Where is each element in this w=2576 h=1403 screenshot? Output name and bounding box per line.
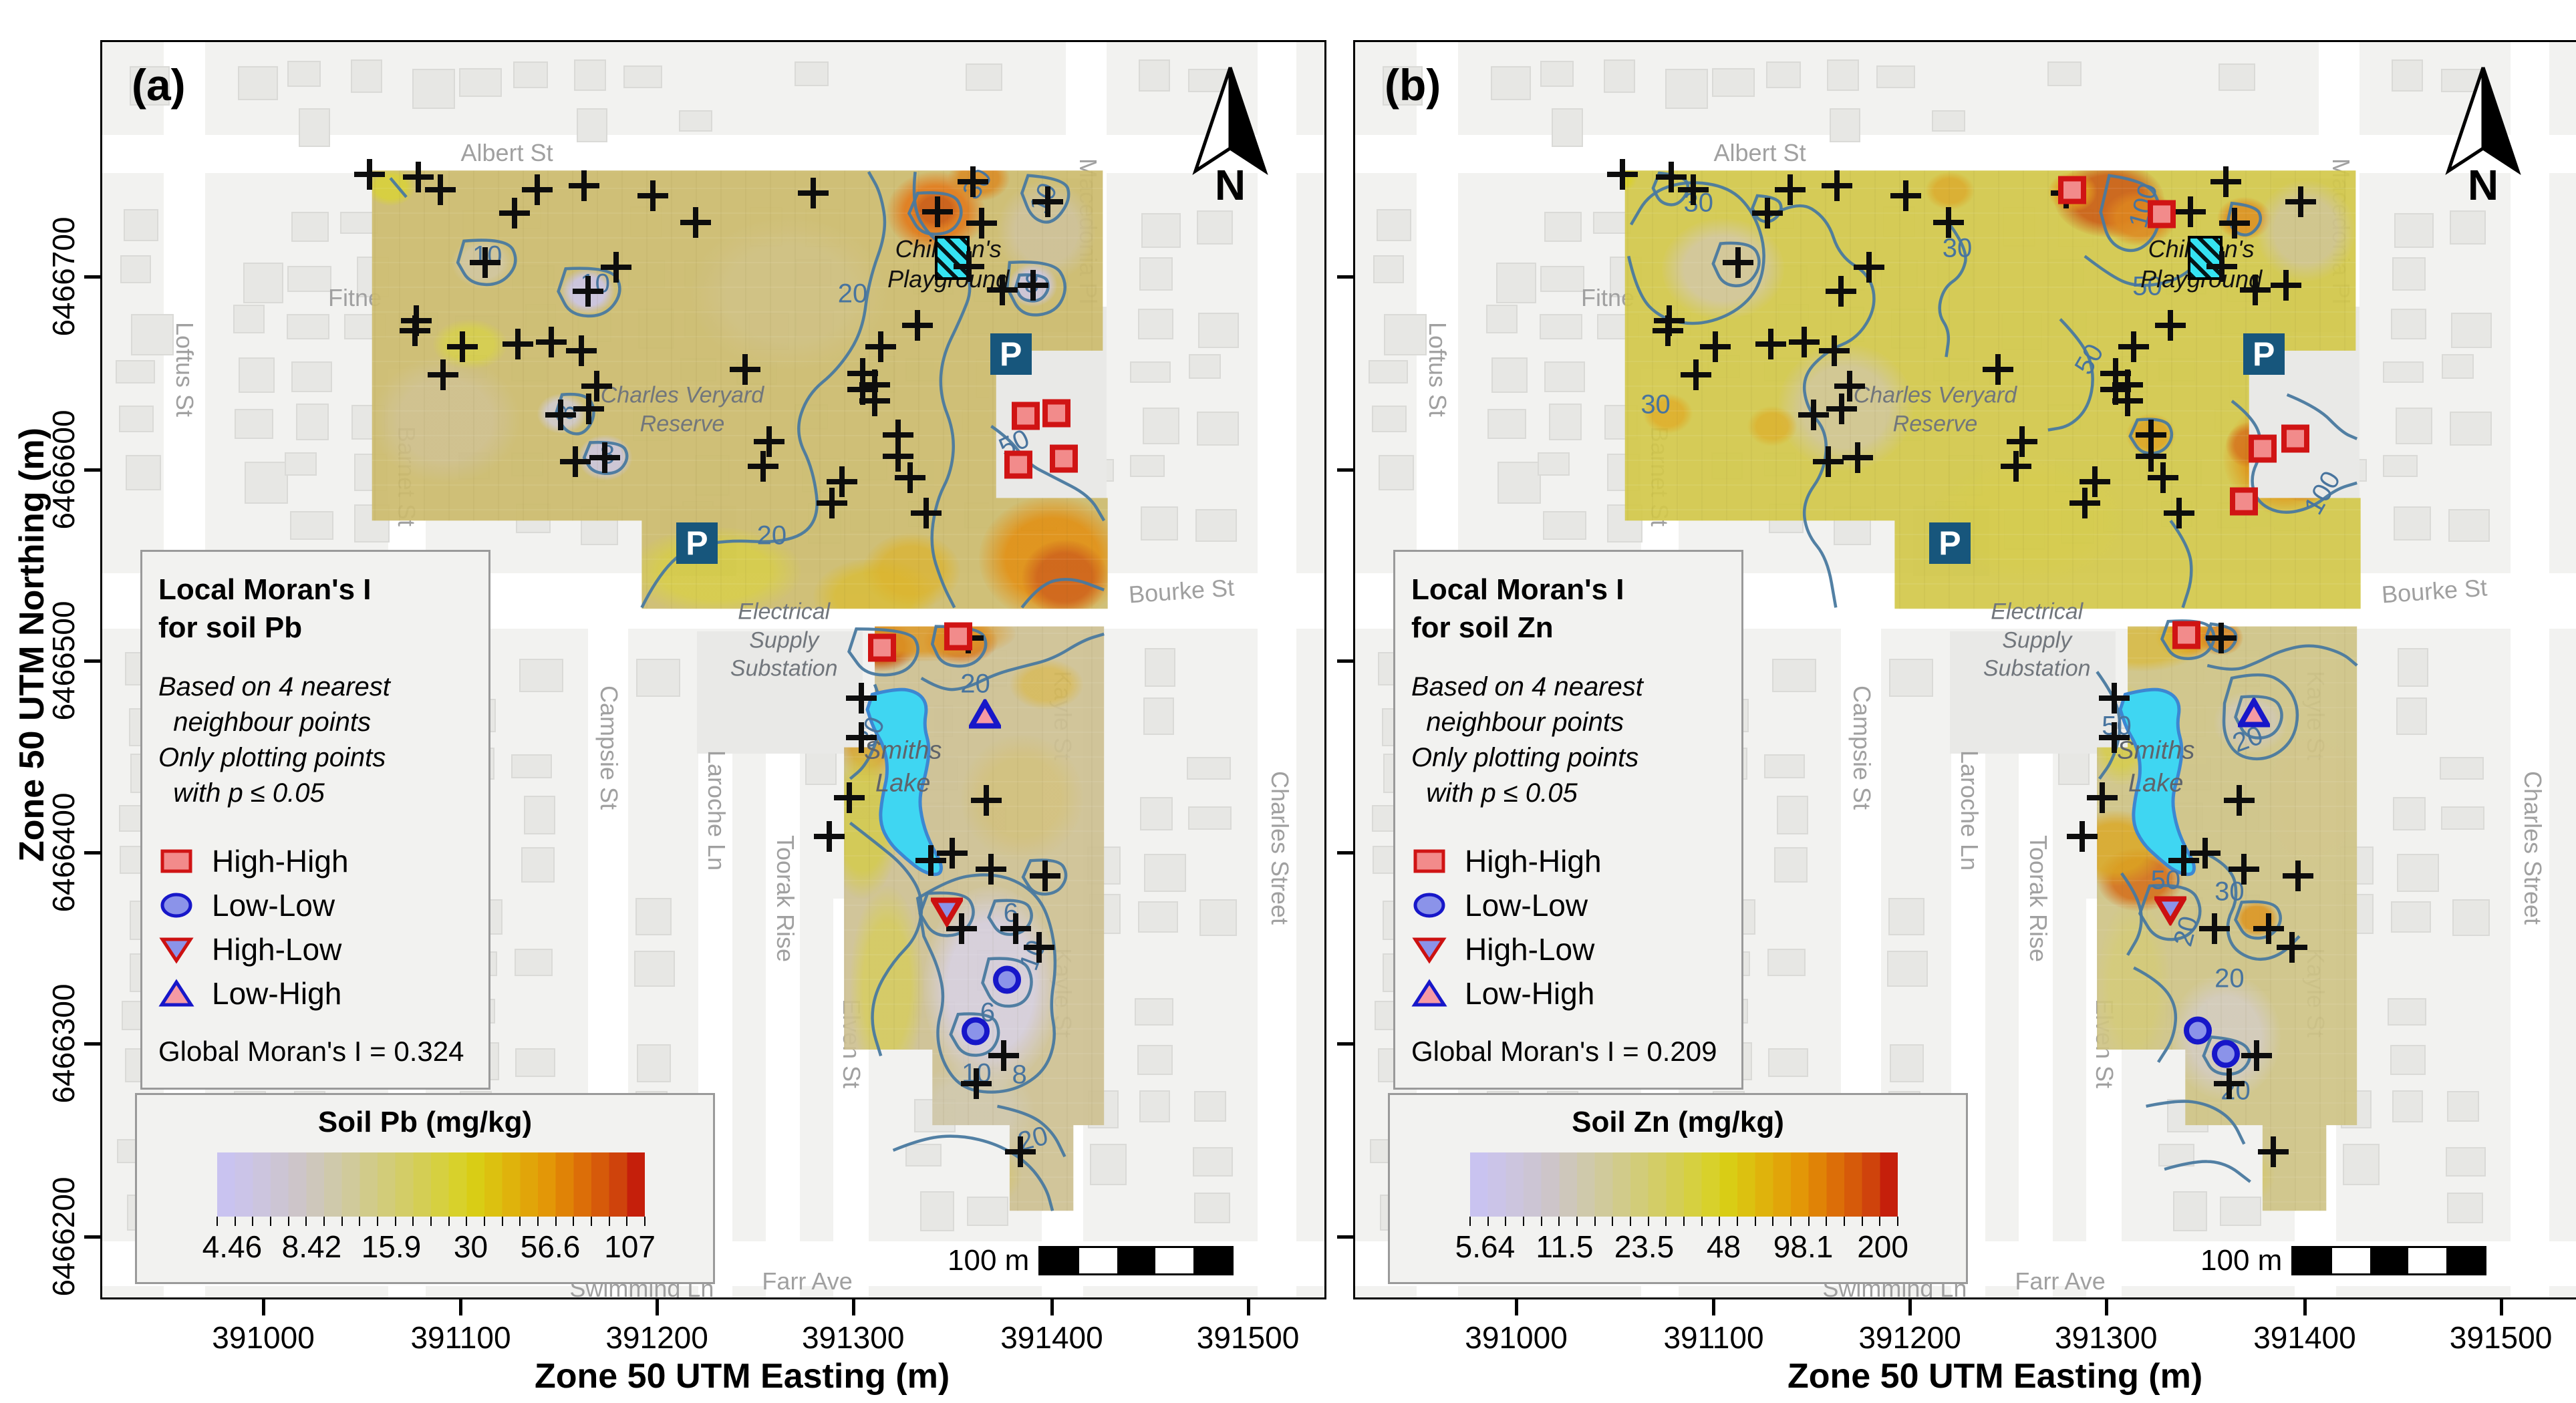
x-axis-tick (1712, 1299, 1715, 1315)
colorbar-tick (359, 1217, 360, 1226)
colorbar-tick (519, 1217, 521, 1226)
building (291, 361, 332, 392)
colorbar-tick (555, 1217, 557, 1226)
building (1139, 59, 1170, 92)
x-axis-title-b: Zone 50 UTM Easting (m) (1787, 1356, 2202, 1396)
building (2451, 313, 2492, 348)
sample-cross (798, 178, 829, 208)
building (519, 659, 563, 692)
building (2447, 1193, 2483, 1224)
y-axis-tick (84, 851, 100, 854)
sample-cross (966, 208, 997, 239)
legend-item: Low-Low (158, 887, 472, 923)
building (2392, 257, 2426, 290)
colorbar-tick (1897, 1217, 1898, 1226)
building (515, 1048, 555, 1076)
sample-cross (680, 207, 711, 238)
colorbar-tick (591, 1217, 592, 1226)
sample-cross (730, 354, 760, 385)
colorbar-tick (644, 1217, 646, 1226)
y-axis-tick-label: 6466400 (45, 792, 82, 912)
legend-item-label: Low-Low (212, 887, 335, 923)
sample-cross (470, 247, 500, 278)
sample-cross (1755, 329, 1786, 359)
building (1552, 108, 1583, 147)
colorbar-tick (305, 1217, 307, 1226)
building (243, 263, 283, 303)
building (1384, 314, 1427, 355)
colorbar-tick (1755, 1217, 1756, 1226)
sample-cross (1933, 207, 1964, 238)
building (291, 212, 329, 242)
legend-item: Low-High (158, 975, 472, 1011)
marker-high-low (931, 895, 963, 930)
building (513, 61, 548, 88)
street-label: Campsie St (595, 685, 623, 810)
sample-cross (1005, 1136, 1036, 1167)
building (2173, 1191, 2208, 1231)
colorbar-tick (1701, 1217, 1703, 1226)
building (795, 61, 829, 86)
building (2383, 455, 2418, 477)
building (635, 898, 672, 935)
x-axis-tick-label: 391400 (2253, 1319, 2356, 1356)
colorbar-tick (341, 1217, 343, 1226)
sample-cross (1607, 159, 1638, 190)
sample-cross (2190, 838, 2221, 869)
building (966, 63, 1002, 91)
colorbar-tick (1737, 1217, 1738, 1226)
legend-note: Based on 4 nearest neighbour pointsOnly … (158, 669, 472, 810)
sample-cross (2069, 488, 2100, 518)
colorbar-tick-label: 98.1 (1773, 1229, 1834, 1265)
legend-low-low-icon (1411, 890, 1447, 921)
colorbar-tick (1862, 1217, 1863, 1226)
x-axis-tick-label: 391500 (2450, 1319, 2553, 1356)
building (577, 108, 608, 142)
building (1130, 361, 1171, 383)
sample-cross (2271, 270, 2301, 301)
sample-cross (428, 359, 458, 390)
street-label: Charles Street (1266, 771, 1294, 925)
contour-label: 20 (2214, 964, 2245, 994)
contour-label: 20 (757, 520, 787, 551)
sample-cross (2067, 821, 2098, 852)
x-axis-title-a: Zone 50 UTM Easting (m) (535, 1356, 950, 1396)
scale-bar-segment (2293, 1248, 2331, 1273)
building (2442, 354, 2474, 379)
y-axis-tick (1337, 1235, 1353, 1239)
building (574, 59, 606, 91)
building (2383, 361, 2424, 383)
building (1141, 213, 1181, 248)
building (459, 68, 502, 97)
legend-item: High-High (1411, 843, 1725, 879)
y-axis-tick (84, 275, 100, 279)
legend-global-moran: Global Moran's I = 0.209 (1411, 1036, 1725, 1068)
street (2511, 42, 2550, 1299)
building (287, 61, 321, 87)
x-axis-tick (1247, 1299, 1250, 1315)
building (2388, 998, 2426, 1026)
sample-cross (976, 854, 1006, 885)
building (1491, 66, 1531, 100)
sample-cross (2229, 854, 2259, 885)
legend-low-low-icon (158, 890, 194, 921)
building (119, 406, 153, 433)
building (1139, 1090, 1170, 1123)
y-axis-tick (84, 468, 100, 472)
sample-cross (895, 462, 925, 493)
sample-cross (971, 785, 1002, 816)
legend-global-moran: Global Moran's I = 0.324 (158, 1036, 472, 1068)
sample-cross (883, 420, 913, 450)
scale-bar: 100 m (948, 1244, 1234, 1277)
sample-cross (1819, 335, 1850, 366)
y-axis-tick (1337, 851, 1353, 854)
sample-cross (1822, 170, 1852, 201)
building (1540, 266, 1584, 292)
sample-cross (2136, 420, 2166, 450)
y-axis-tick (84, 659, 100, 663)
legend-box: Local Moran's Ifor soil PbBased on 4 nea… (140, 550, 490, 1090)
sample-cross (573, 276, 603, 307)
sample-cross (846, 683, 877, 714)
legend-high-high-icon (158, 846, 194, 877)
parking-icon: P (2243, 333, 2285, 375)
building (1130, 455, 1165, 477)
sample-cross (2199, 913, 2230, 944)
x-axis-tick-label: 391200 (605, 1319, 708, 1356)
sample-cross (987, 275, 1018, 305)
legend-items: High-HighLow-LowHigh-LowLow-High (1411, 843, 1725, 1011)
scale-bar-segment (2446, 1248, 2484, 1273)
colorbar-tick (1683, 1217, 1685, 1226)
scale-bar-segment (1193, 1248, 1232, 1273)
building (2394, 506, 2431, 541)
colorbar-box: Soil Pb (mg/kg)4.468.4215.93056.6107 (135, 1093, 715, 1284)
colorbar-tick (252, 1217, 253, 1226)
building (2396, 697, 2428, 735)
street-label: Farr Ave (762, 1267, 852, 1295)
colorbar-tick (609, 1217, 610, 1226)
contour-label: 20 (838, 279, 868, 309)
street-label: Toorak Rise (771, 835, 799, 962)
x-axis-tick-label: 391100 (410, 1319, 511, 1356)
building (1932, 110, 1965, 132)
colorbar-tick (1505, 1217, 1506, 1226)
building (287, 314, 329, 339)
colorbar-tick (1576, 1217, 1578, 1226)
sample-cross (1813, 446, 1844, 477)
building (967, 1197, 1008, 1226)
sample-cross (902, 310, 933, 341)
building (623, 65, 662, 89)
building (1135, 998, 1173, 1026)
building (1544, 361, 1585, 392)
sample-cross (601, 252, 631, 283)
x-axis-tick-label: 391500 (1197, 1319, 1300, 1356)
colorbar-tick (217, 1217, 218, 1226)
street-label: Campsie St (1848, 685, 1876, 810)
panel-letter: (a) (132, 59, 186, 110)
contour-label: 20 (960, 669, 990, 699)
sample-cross (2087, 782, 2118, 813)
sample-cross (560, 446, 591, 477)
legend-item-label: Low-High (1465, 975, 1594, 1011)
building (1188, 806, 1232, 830)
scale-bar: 100 m (2200, 1244, 2486, 1277)
sample-cross (1723, 247, 1753, 278)
building (634, 951, 675, 987)
building (2448, 509, 2489, 542)
sample-cross (1700, 331, 1731, 362)
colorbar-tick-label: 15.9 (362, 1229, 422, 1265)
colorbar-tick (466, 1217, 467, 1226)
colorbar-gradient (1470, 1152, 1898, 1217)
street-label: Charles Street (2519, 771, 2547, 925)
colorbar-tick (1844, 1217, 1845, 1226)
scale-bar-segment (1117, 1248, 1155, 1273)
sample-cross (1681, 359, 1711, 390)
street-label: Loftus St (1423, 322, 1451, 417)
sample-cross (2099, 722, 2130, 753)
x-axis-tick (1515, 1299, 1518, 1315)
sample-cross (2175, 196, 2206, 227)
building (1767, 949, 1806, 977)
scale-bar-segments (2291, 1246, 2486, 1275)
sample-cross (954, 251, 984, 282)
sample-cross (922, 196, 953, 227)
marker-low-high (969, 699, 1001, 735)
street (2019, 672, 2053, 1300)
building (1549, 404, 1581, 440)
legend-low-high-icon (158, 978, 194, 1009)
building (1538, 452, 1570, 475)
legend-item-label: High-Low (212, 931, 341, 967)
sample-cross (589, 442, 620, 473)
building (120, 255, 152, 283)
north-arrow-icon: N (2426, 61, 2540, 204)
x-axis-tick (459, 1299, 462, 1315)
sample-cross (1890, 180, 1921, 211)
building (131, 314, 174, 355)
marker-high-high (2228, 485, 2260, 520)
street-label: Laroche Ln (702, 750, 730, 871)
colorbar-tick (1826, 1217, 1827, 1226)
building (1888, 898, 1924, 935)
building (2391, 309, 2427, 339)
building (1194, 1193, 1230, 1224)
x-axis-tick-label: 391300 (802, 1319, 905, 1356)
sample-cross (2219, 208, 2250, 239)
colorbar-tick (1487, 1217, 1489, 1226)
building (1487, 409, 1526, 439)
building (515, 949, 553, 977)
street (1258, 42, 1297, 1299)
building (905, 1144, 942, 1167)
sample-cross (2148, 462, 2178, 493)
area-label: ElectricalSupplySubstation (730, 598, 838, 683)
building (636, 659, 680, 697)
building (1138, 901, 1178, 933)
legend-item: High-High (158, 843, 472, 879)
building (2397, 854, 2440, 892)
sample-cross (2240, 275, 2271, 305)
sample-cross (859, 369, 890, 400)
colorbar-tick (537, 1217, 539, 1226)
building (1496, 263, 1536, 303)
legend-high-low-icon (1411, 934, 1447, 965)
building (1497, 462, 1541, 503)
y-axis-tick-label: 6466300 (45, 984, 82, 1104)
colorbar-tick-label: 11.5 (1536, 1229, 1593, 1265)
colorbar-tick (1612, 1217, 1613, 1226)
building (285, 452, 317, 475)
building (1768, 1048, 1808, 1076)
y-axis-tick-label: 6466500 (45, 601, 82, 721)
sample-cross (2206, 251, 2237, 282)
colorbar-tick (1719, 1217, 1720, 1226)
colorbar-tick (1665, 1217, 1667, 1226)
scale-bar-segment (1155, 1248, 1193, 1273)
building (2219, 63, 2255, 91)
scale-bar-label: 100 m (2200, 1244, 2282, 1277)
colorbar-tick (395, 1217, 396, 1226)
sample-cross (2164, 498, 2194, 528)
x-axis-tick (1908, 1299, 1912, 1315)
colorbar-tick (1648, 1217, 1649, 1226)
building (1139, 257, 1173, 290)
colorbar-tick (430, 1217, 432, 1226)
legend-item: High-Low (158, 931, 472, 967)
legend-items: High-HighLow-LowHigh-LowLow-High (158, 843, 472, 1011)
sample-cross (425, 174, 456, 205)
colorbar-title: Soil Zn (mg/kg) (1390, 1106, 1966, 1139)
marker-low-low (2210, 1038, 2242, 1074)
building (1486, 305, 1518, 333)
building (637, 1044, 672, 1083)
street-label: Loftus St (170, 322, 198, 417)
colorbar-tick (377, 1217, 378, 1226)
marker-low-low (2182, 1014, 2214, 1050)
colorbar-tick (573, 1217, 574, 1226)
legend-item-label: Low-Low (1465, 887, 1588, 923)
sample-cross (1983, 354, 2013, 385)
marker-high-high (1040, 397, 1072, 432)
sample-cross (2283, 861, 2313, 891)
colorbar-tick (1772, 1217, 1773, 1226)
marker-high-high (2146, 198, 2178, 234)
colorbar-title: Soil Pb (mg/kg) (137, 1106, 713, 1139)
building (1141, 506, 1178, 541)
sample-cross (400, 315, 430, 346)
building (2393, 797, 2426, 830)
svg-text:N: N (2468, 161, 2498, 204)
legend-item: Low-Low (1411, 887, 1725, 923)
building (1197, 412, 1238, 446)
building (1766, 61, 1801, 88)
building (1194, 1091, 1226, 1122)
legend-item: Low-High (1411, 975, 1725, 1011)
colorbar-tick-label: 200 (1857, 1229, 1908, 1265)
building (1887, 951, 1928, 987)
building (235, 409, 273, 439)
parking-icon: P (676, 522, 718, 564)
legend-item: High-Low (1411, 931, 1725, 967)
building (2396, 408, 2433, 444)
x-axis-tick (656, 1299, 659, 1315)
building (1830, 108, 1861, 142)
colorbar-tick (235, 1217, 236, 1226)
building (1540, 314, 1582, 339)
building (126, 455, 161, 490)
x-axis-tick-label: 391000 (1465, 1319, 1568, 1356)
colorbar-tick-label: 8.42 (282, 1229, 342, 1265)
building (524, 796, 555, 834)
building (1187, 757, 1231, 779)
building (1198, 313, 1239, 348)
colorbar-gradient (217, 1152, 645, 1217)
building (1189, 354, 1221, 379)
building (1372, 406, 1406, 433)
building (1199, 899, 1237, 936)
colorbar-tick (323, 1217, 325, 1226)
x-axis-tick-label: 391400 (1000, 1319, 1103, 1356)
street (102, 135, 1326, 173)
contour-label: 30 (1640, 389, 1671, 420)
building (1137, 1045, 1173, 1075)
colorbar-tick (1790, 1217, 1792, 1226)
building (1138, 309, 1174, 339)
scale-bar-segments (1038, 1246, 1234, 1275)
sample-cross (1826, 276, 1856, 307)
marker-high-low (2154, 893, 2186, 929)
street (1355, 135, 2576, 173)
scale-bar-label: 100 m (948, 1244, 1029, 1277)
colorbar-tick-label: 30 (454, 1229, 488, 1265)
colorbar-tick-label: 5.64 (1455, 1229, 1516, 1265)
scale-bar-segment (2408, 1248, 2446, 1273)
building (1193, 1147, 1234, 1176)
x-axis-tick-label: 391100 (1663, 1319, 1763, 1356)
x-axis-tick (2500, 1299, 2503, 1315)
legend-title: Local Moran's Ifor soil Zn (1411, 571, 1725, 647)
legend-item-label: High-High (212, 843, 349, 879)
building (2450, 412, 2491, 446)
building (351, 59, 382, 94)
sample-cross (536, 327, 567, 357)
colorbar-tick-label: 23.5 (1614, 1229, 1675, 1265)
building (1140, 797, 1173, 830)
building (287, 266, 331, 292)
building (238, 66, 278, 100)
building (1777, 796, 1808, 834)
legend-low-high-icon (1411, 978, 1447, 1009)
x-axis-tick-label: 391300 (2055, 1319, 2158, 1356)
colorbar-tick (270, 1217, 271, 1226)
building (1143, 408, 1180, 444)
sample-cross (988, 1040, 1019, 1071)
building (1543, 511, 1586, 540)
street-label: Laroche Ln (1955, 750, 1983, 871)
building (296, 404, 328, 440)
parking-icon: P (990, 333, 1032, 375)
street-label: Toorak Rise (2024, 835, 2052, 962)
building (1143, 697, 1175, 735)
sample-cross (354, 159, 385, 190)
building (1090, 1144, 1127, 1185)
